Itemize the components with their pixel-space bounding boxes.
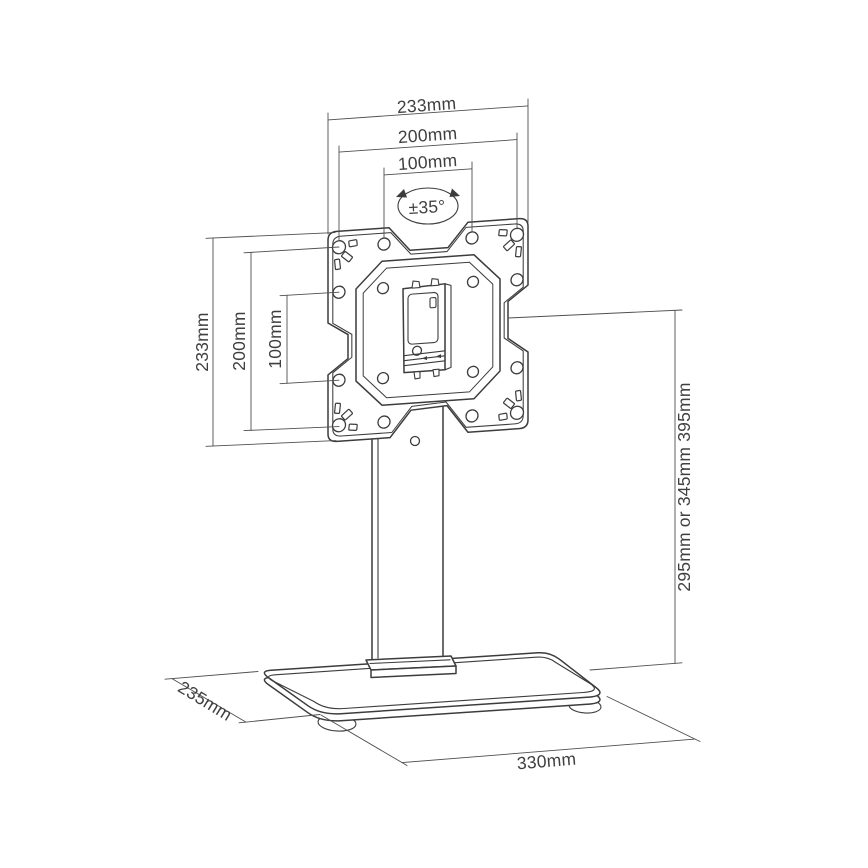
bracket-tab-right [431, 278, 439, 286]
dim-stand-height: 295mm or 345mm 395mm [508, 310, 694, 670]
dim-label: 235mm [175, 677, 236, 725]
dim-label: 100mm [265, 309, 285, 368]
dim-label: 200mm [397, 123, 458, 147]
technical-diagram: 233mm 200mm 100mm 233mm 200mm [0, 0, 868, 868]
rotation-indicator: ±35° [396, 188, 460, 224]
monitor-stand-drawing: 233mm 200mm 100mm 233mm 200mm [0, 0, 868, 868]
bracket-hook-right [433, 369, 439, 376]
dim-label: 200mm [229, 311, 249, 370]
bracket-hook-left [414, 372, 420, 379]
dim-label: 233mm [192, 312, 212, 371]
dim-label: 233mm [396, 93, 457, 117]
column-hole [411, 437, 420, 446]
column-body [372, 400, 443, 660]
dim-label: 100mm [397, 150, 458, 174]
dim-plate-height-outer: 233mm [192, 233, 336, 447]
quick-release-bracket [403, 277, 451, 379]
bracket-side-face [445, 283, 451, 369]
rotation-arrow-right-icon [450, 189, 461, 198]
vesa-plate [328, 218, 528, 442]
dim-label: 330mm [516, 749, 577, 774]
bracket-tab-left [412, 281, 420, 289]
stand-column [366, 400, 456, 678]
dim-plate-width-vesa100: 100mm [384, 150, 472, 238]
dim-label: 295mm or 345mm 395mm [674, 382, 694, 591]
rotation-arrow-left-icon [396, 189, 407, 198]
swivel-angle-label: ±35° [408, 196, 446, 218]
bracket-step [430, 297, 436, 307]
